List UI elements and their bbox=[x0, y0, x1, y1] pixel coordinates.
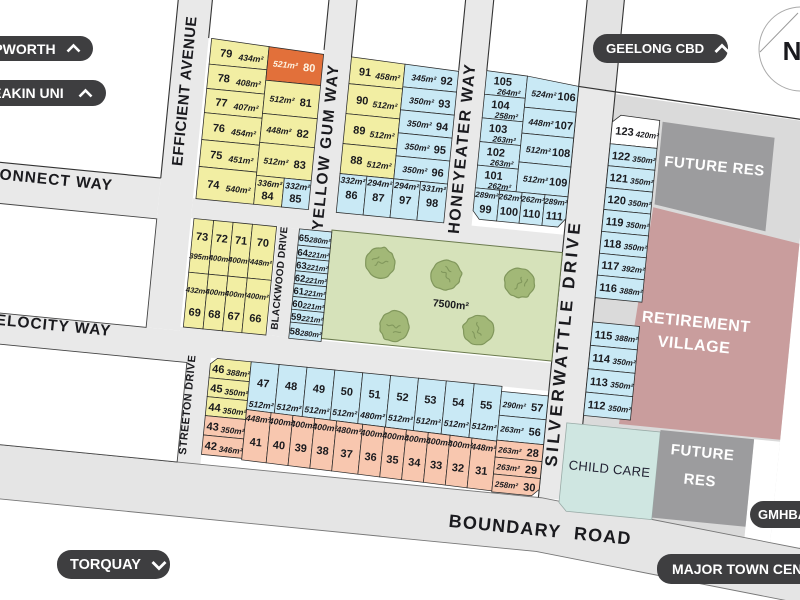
svg-text:109: 109 bbox=[548, 176, 567, 190]
svg-text:107: 107 bbox=[554, 119, 573, 133]
svg-text:99: 99 bbox=[479, 203, 492, 216]
svg-text:33: 33 bbox=[429, 459, 442, 472]
svg-text:86: 86 bbox=[345, 189, 358, 202]
svg-text:55: 55 bbox=[479, 399, 492, 412]
svg-text:37: 37 bbox=[340, 448, 353, 461]
svg-text:123: 123 bbox=[615, 125, 634, 139]
svg-text:38: 38 bbox=[316, 445, 329, 458]
svg-text:41: 41 bbox=[249, 436, 262, 449]
svg-text:121: 121 bbox=[609, 172, 628, 186]
svg-text:36: 36 bbox=[364, 451, 377, 464]
svg-text:30: 30 bbox=[523, 481, 536, 494]
svg-text:108: 108 bbox=[551, 147, 570, 161]
svg-text:90: 90 bbox=[356, 95, 369, 108]
svg-text:91: 91 bbox=[358, 66, 371, 79]
svg-text:70: 70 bbox=[256, 237, 269, 250]
svg-text:40: 40 bbox=[272, 439, 285, 452]
svg-text:93: 93 bbox=[438, 98, 451, 111]
svg-text:83: 83 bbox=[293, 159, 306, 172]
svg-text:43: 43 bbox=[206, 421, 219, 434]
svg-text:49: 49 bbox=[312, 383, 325, 396]
svg-text:46: 46 bbox=[212, 363, 225, 376]
svg-text:48: 48 bbox=[284, 380, 297, 393]
svg-text:117: 117 bbox=[601, 260, 620, 274]
svg-text:82: 82 bbox=[296, 128, 309, 141]
svg-text:118: 118 bbox=[603, 238, 622, 252]
svg-text:94: 94 bbox=[435, 121, 449, 134]
svg-text:79: 79 bbox=[219, 47, 232, 60]
svg-text:89: 89 bbox=[353, 124, 366, 137]
svg-text:116: 116 bbox=[599, 282, 618, 296]
svg-text:85: 85 bbox=[289, 193, 302, 206]
svg-text:88: 88 bbox=[350, 154, 363, 167]
svg-text:52: 52 bbox=[396, 391, 409, 404]
svg-text:74: 74 bbox=[207, 179, 221, 192]
svg-text:122: 122 bbox=[611, 150, 630, 164]
svg-text:110: 110 bbox=[522, 208, 541, 222]
svg-text:115: 115 bbox=[594, 329, 613, 343]
svg-text:51: 51 bbox=[368, 388, 381, 401]
svg-text:97: 97 bbox=[399, 194, 412, 207]
svg-text:111: 111 bbox=[545, 210, 563, 224]
svg-text:100: 100 bbox=[499, 205, 518, 219]
svg-text:113: 113 bbox=[589, 376, 608, 390]
svg-text:84: 84 bbox=[261, 190, 275, 203]
svg-text:42: 42 bbox=[204, 440, 217, 453]
svg-text:80: 80 bbox=[302, 62, 315, 75]
svg-text:98: 98 bbox=[425, 197, 438, 210]
svg-text:72: 72 bbox=[215, 233, 228, 246]
svg-text:77: 77 bbox=[215, 97, 228, 110]
svg-text:39: 39 bbox=[294, 442, 307, 455]
svg-text:76: 76 bbox=[212, 122, 225, 135]
svg-text:95: 95 bbox=[433, 144, 446, 157]
svg-text:120: 120 bbox=[607, 194, 626, 208]
svg-text:112: 112 bbox=[587, 399, 606, 413]
svg-text:119: 119 bbox=[605, 216, 624, 230]
svg-text:92: 92 bbox=[440, 75, 453, 88]
svg-text:78: 78 bbox=[217, 72, 230, 85]
svg-text:66: 66 bbox=[249, 312, 262, 325]
svg-text:96: 96 bbox=[431, 167, 444, 180]
svg-text:50: 50 bbox=[340, 386, 353, 399]
svg-text:73: 73 bbox=[195, 231, 208, 244]
svg-text:56: 56 bbox=[528, 426, 541, 439]
svg-text:RES: RES bbox=[683, 471, 717, 491]
svg-text:31: 31 bbox=[475, 465, 488, 478]
svg-text:69: 69 bbox=[188, 306, 201, 319]
svg-text:114: 114 bbox=[592, 352, 612, 366]
svg-text:N: N bbox=[783, 36, 800, 66]
svg-text:45: 45 bbox=[210, 383, 223, 396]
svg-text:57: 57 bbox=[530, 402, 543, 415]
svg-text:32: 32 bbox=[451, 462, 464, 475]
svg-text:28: 28 bbox=[526, 447, 539, 460]
svg-text:68: 68 bbox=[208, 308, 221, 321]
svg-text:44: 44 bbox=[208, 402, 222, 415]
svg-text:53: 53 bbox=[424, 394, 437, 407]
svg-text:54: 54 bbox=[452, 397, 466, 410]
svg-text:81: 81 bbox=[299, 97, 312, 110]
svg-text:29: 29 bbox=[524, 464, 537, 477]
svg-text:87: 87 bbox=[372, 192, 385, 205]
svg-text:71: 71 bbox=[234, 235, 247, 248]
svg-text:106: 106 bbox=[557, 91, 576, 105]
svg-text:47: 47 bbox=[256, 377, 269, 390]
svg-text:67: 67 bbox=[227, 310, 240, 323]
svg-text:35: 35 bbox=[386, 454, 399, 467]
svg-text:34: 34 bbox=[408, 456, 422, 469]
svg-text:75: 75 bbox=[210, 149, 223, 162]
